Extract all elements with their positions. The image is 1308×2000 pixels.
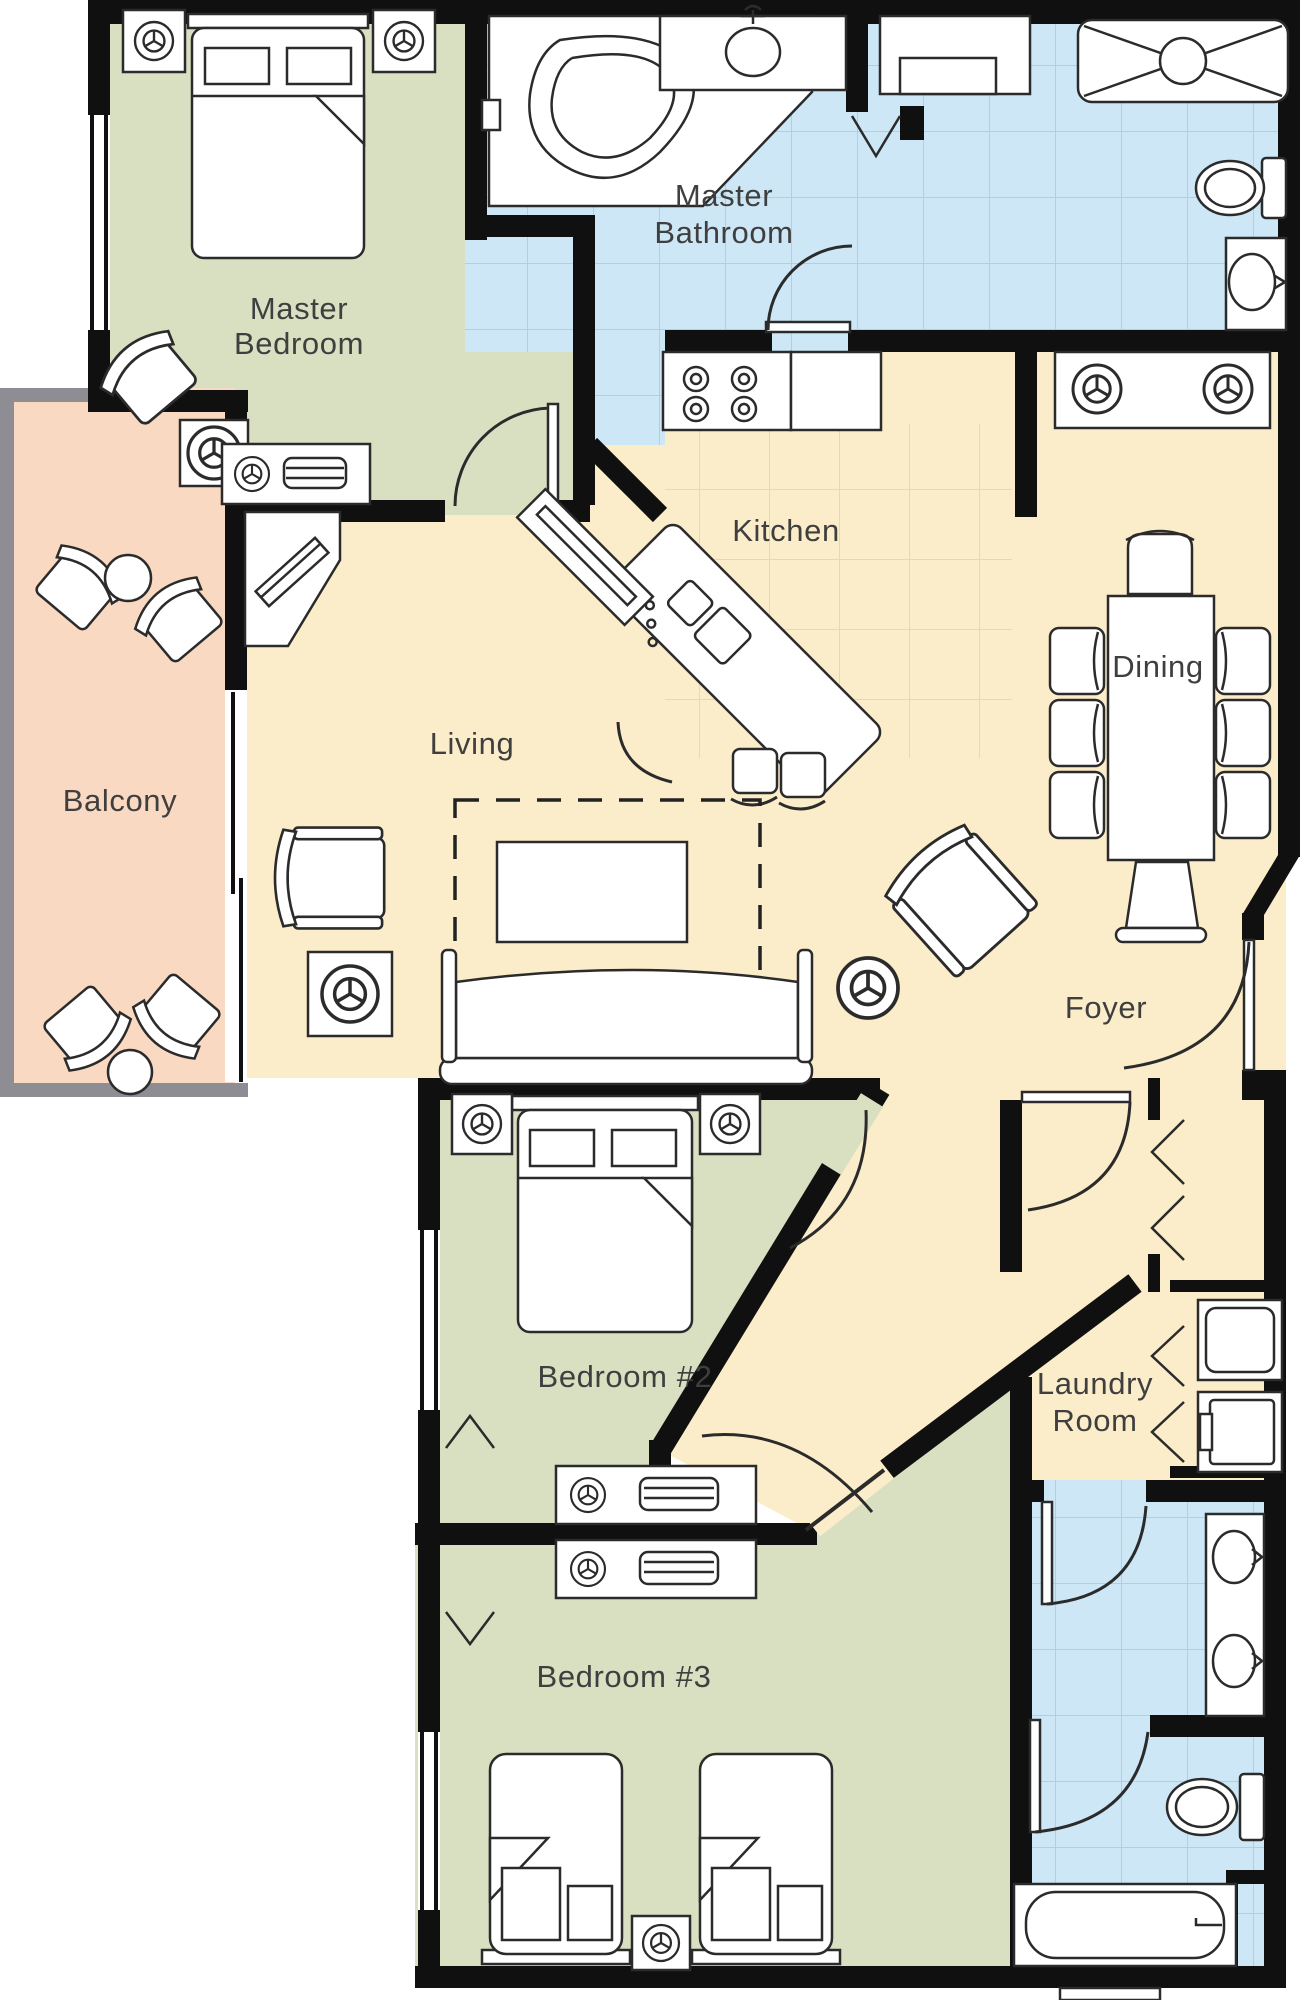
pillow xyxy=(778,1886,822,1940)
pillow xyxy=(287,48,351,84)
tv xyxy=(284,458,346,488)
pillow xyxy=(568,1886,612,1940)
sink xyxy=(726,28,780,76)
door-leaf xyxy=(1042,1502,1052,1604)
speaker-icon xyxy=(1073,365,1121,413)
dining-table xyxy=(1108,596,1214,860)
shower-drain xyxy=(1160,38,1206,84)
coffee-table xyxy=(497,842,687,942)
speaker-icon xyxy=(838,958,898,1018)
counter xyxy=(791,352,881,430)
speaker-icon xyxy=(711,1105,749,1143)
speaker-icon xyxy=(1204,365,1252,413)
bathtub xyxy=(1026,1892,1224,1958)
label-bedroom2: Bedroom #2 xyxy=(538,1359,713,1394)
balcony-table xyxy=(108,1050,152,1094)
pillow xyxy=(530,1130,594,1166)
stove-counter xyxy=(663,352,791,430)
vent-unit xyxy=(1060,1988,1160,2000)
dining-chair xyxy=(1216,772,1270,838)
pillow xyxy=(612,1130,676,1166)
sofa-back xyxy=(440,1058,812,1084)
dining-chair xyxy=(1216,700,1270,766)
label-foyer: Foyer xyxy=(1065,990,1147,1025)
label-balcony: Balcony xyxy=(63,783,178,818)
entry-door-leaf xyxy=(1244,940,1254,1070)
dryer-panel xyxy=(1200,1414,1212,1450)
label-bedroom3: Bedroom #3 xyxy=(537,1659,712,1694)
sink xyxy=(1213,1635,1255,1687)
label-master-bedroom-1: Master xyxy=(250,291,348,326)
label-laundry-1: Laundry xyxy=(1037,1366,1153,1401)
cabinet-inner xyxy=(900,58,996,94)
pillow xyxy=(502,1868,560,1940)
washer-lid xyxy=(1206,1308,1274,1372)
pillow xyxy=(712,1868,770,1940)
speaker-icon xyxy=(135,22,173,60)
speaker-icon xyxy=(571,1478,605,1512)
dryer-door xyxy=(1210,1400,1274,1464)
sofa-arm xyxy=(798,950,812,1062)
bar-stool xyxy=(781,753,825,797)
door-leaf xyxy=(548,404,558,506)
bed-headboard xyxy=(512,1096,698,1110)
balcony-wall-top xyxy=(0,388,92,402)
tv xyxy=(640,1552,718,1584)
speaker-icon xyxy=(571,1552,605,1586)
balcony-slider xyxy=(225,690,247,1082)
speaker-icon xyxy=(235,457,269,491)
label-kitchen: Kitchen xyxy=(732,513,840,548)
room-balcony xyxy=(10,388,235,1090)
toilet-tank xyxy=(1262,158,1286,218)
floor-plan: Master Bedroom Master Bathroom Kitchen D… xyxy=(0,0,1308,2000)
bed-headboard xyxy=(188,14,368,28)
balcony-table xyxy=(105,555,151,601)
dining-chair-head xyxy=(1128,534,1192,594)
label-laundry-2: Room xyxy=(1052,1403,1137,1438)
speaker-icon xyxy=(643,1925,679,1961)
floor-plan-canvas: Master Bedroom Master Bathroom Kitchen D… xyxy=(0,0,1308,2000)
speaker-icon xyxy=(322,966,378,1022)
tub-faucet xyxy=(482,100,500,130)
armchair xyxy=(275,828,384,929)
dining-chair-foot xyxy=(1126,862,1198,928)
sofa-arm xyxy=(442,950,456,1062)
door-leaf xyxy=(1030,1720,1040,1832)
sink xyxy=(1229,254,1275,310)
hall-door-leaf xyxy=(1022,1092,1130,1102)
sink xyxy=(1213,1531,1255,1583)
chair-foot-bar xyxy=(1116,928,1206,942)
dining-chair xyxy=(1050,772,1104,838)
tv xyxy=(640,1478,718,1510)
bar-stool xyxy=(733,749,777,793)
label-master-bathroom-1: Master xyxy=(675,178,773,213)
label-master-bathroom-2: Bathroom xyxy=(654,215,793,250)
label-living: Living xyxy=(430,726,515,761)
toilet-tank xyxy=(1240,1774,1264,1840)
speaker-icon xyxy=(463,1105,501,1143)
sofa-seat xyxy=(456,970,798,1058)
pillow xyxy=(205,48,269,84)
dining-chair xyxy=(1050,700,1104,766)
label-master-bedroom-2: Bedroom xyxy=(234,326,364,361)
door-leaf xyxy=(766,322,850,332)
dining-chair xyxy=(1216,628,1270,694)
label-dining: Dining xyxy=(1112,649,1203,684)
dining-chair xyxy=(1050,628,1104,694)
speaker-icon xyxy=(385,22,423,60)
balcony-wall-left xyxy=(0,388,14,1097)
